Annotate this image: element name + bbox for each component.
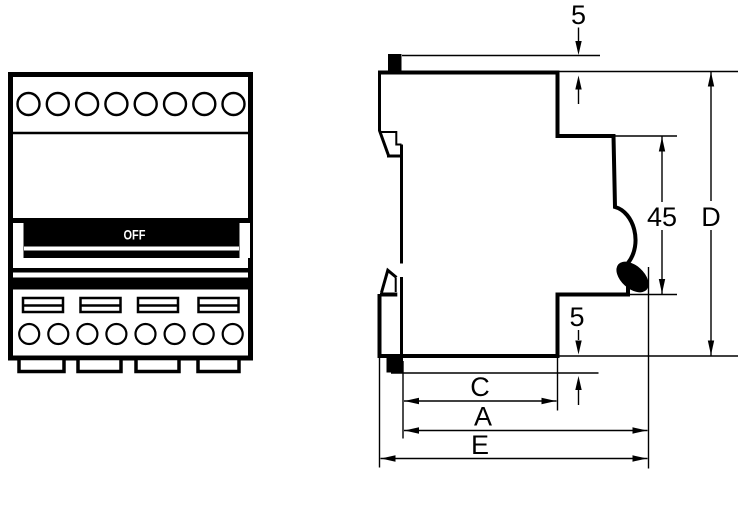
din-clip-lower: [380, 270, 402, 354]
din-clip-upper: [380, 71, 402, 264]
side-profile-outline: [380, 73, 636, 357]
dim-label-bottom-clearance: 5: [569, 302, 584, 332]
mounting-foot: [136, 359, 179, 372]
breaker-dimension-drawing: OFF: [0, 0, 745, 516]
trim-band: [13, 278, 249, 290]
front-body: [11, 75, 251, 359]
toggle-recess: OFF: [13, 218, 251, 258]
dim-width-c: C: [404, 372, 557, 404]
dim-label-width-c: C: [470, 372, 490, 402]
mounting-foot: [19, 359, 64, 372]
mounting-foot: [78, 359, 121, 372]
rail-stop-top: [388, 54, 402, 72]
dim-top-clearance: 5: [571, 0, 586, 104]
dim-bottom-clearance: 5: [569, 302, 584, 405]
dim-label-width-e: E: [471, 430, 489, 460]
dim-width-a: A: [404, 402, 648, 434]
dim-label-overall-height: D: [701, 202, 721, 232]
breaker-front-view: OFF: [11, 75, 251, 372]
toggle-recess-right-tab: [240, 223, 251, 258]
trim-line: [13, 268, 249, 273]
dim-width-e: E: [381, 430, 648, 462]
rail-foot-bottom: [387, 358, 404, 373]
toggle-slit: [24, 247, 239, 251]
breaker-side-view: [380, 54, 655, 373]
toggle-lever: [611, 256, 655, 299]
dim-label-top-clearance: 5: [571, 0, 586, 30]
off-toggle-label: OFF: [124, 227, 146, 243]
toggle-recess-left-tab: [13, 223, 24, 258]
technical-drawing-page: OFF: [0, 0, 745, 516]
dim-front-height-45: 45: [645, 136, 680, 295]
mounting-foot: [198, 359, 239, 372]
dim-overall-height-d: D: [696, 72, 726, 357]
dim-label-width-a: A: [474, 402, 492, 432]
dim-label-front-height: 45: [647, 202, 677, 232]
